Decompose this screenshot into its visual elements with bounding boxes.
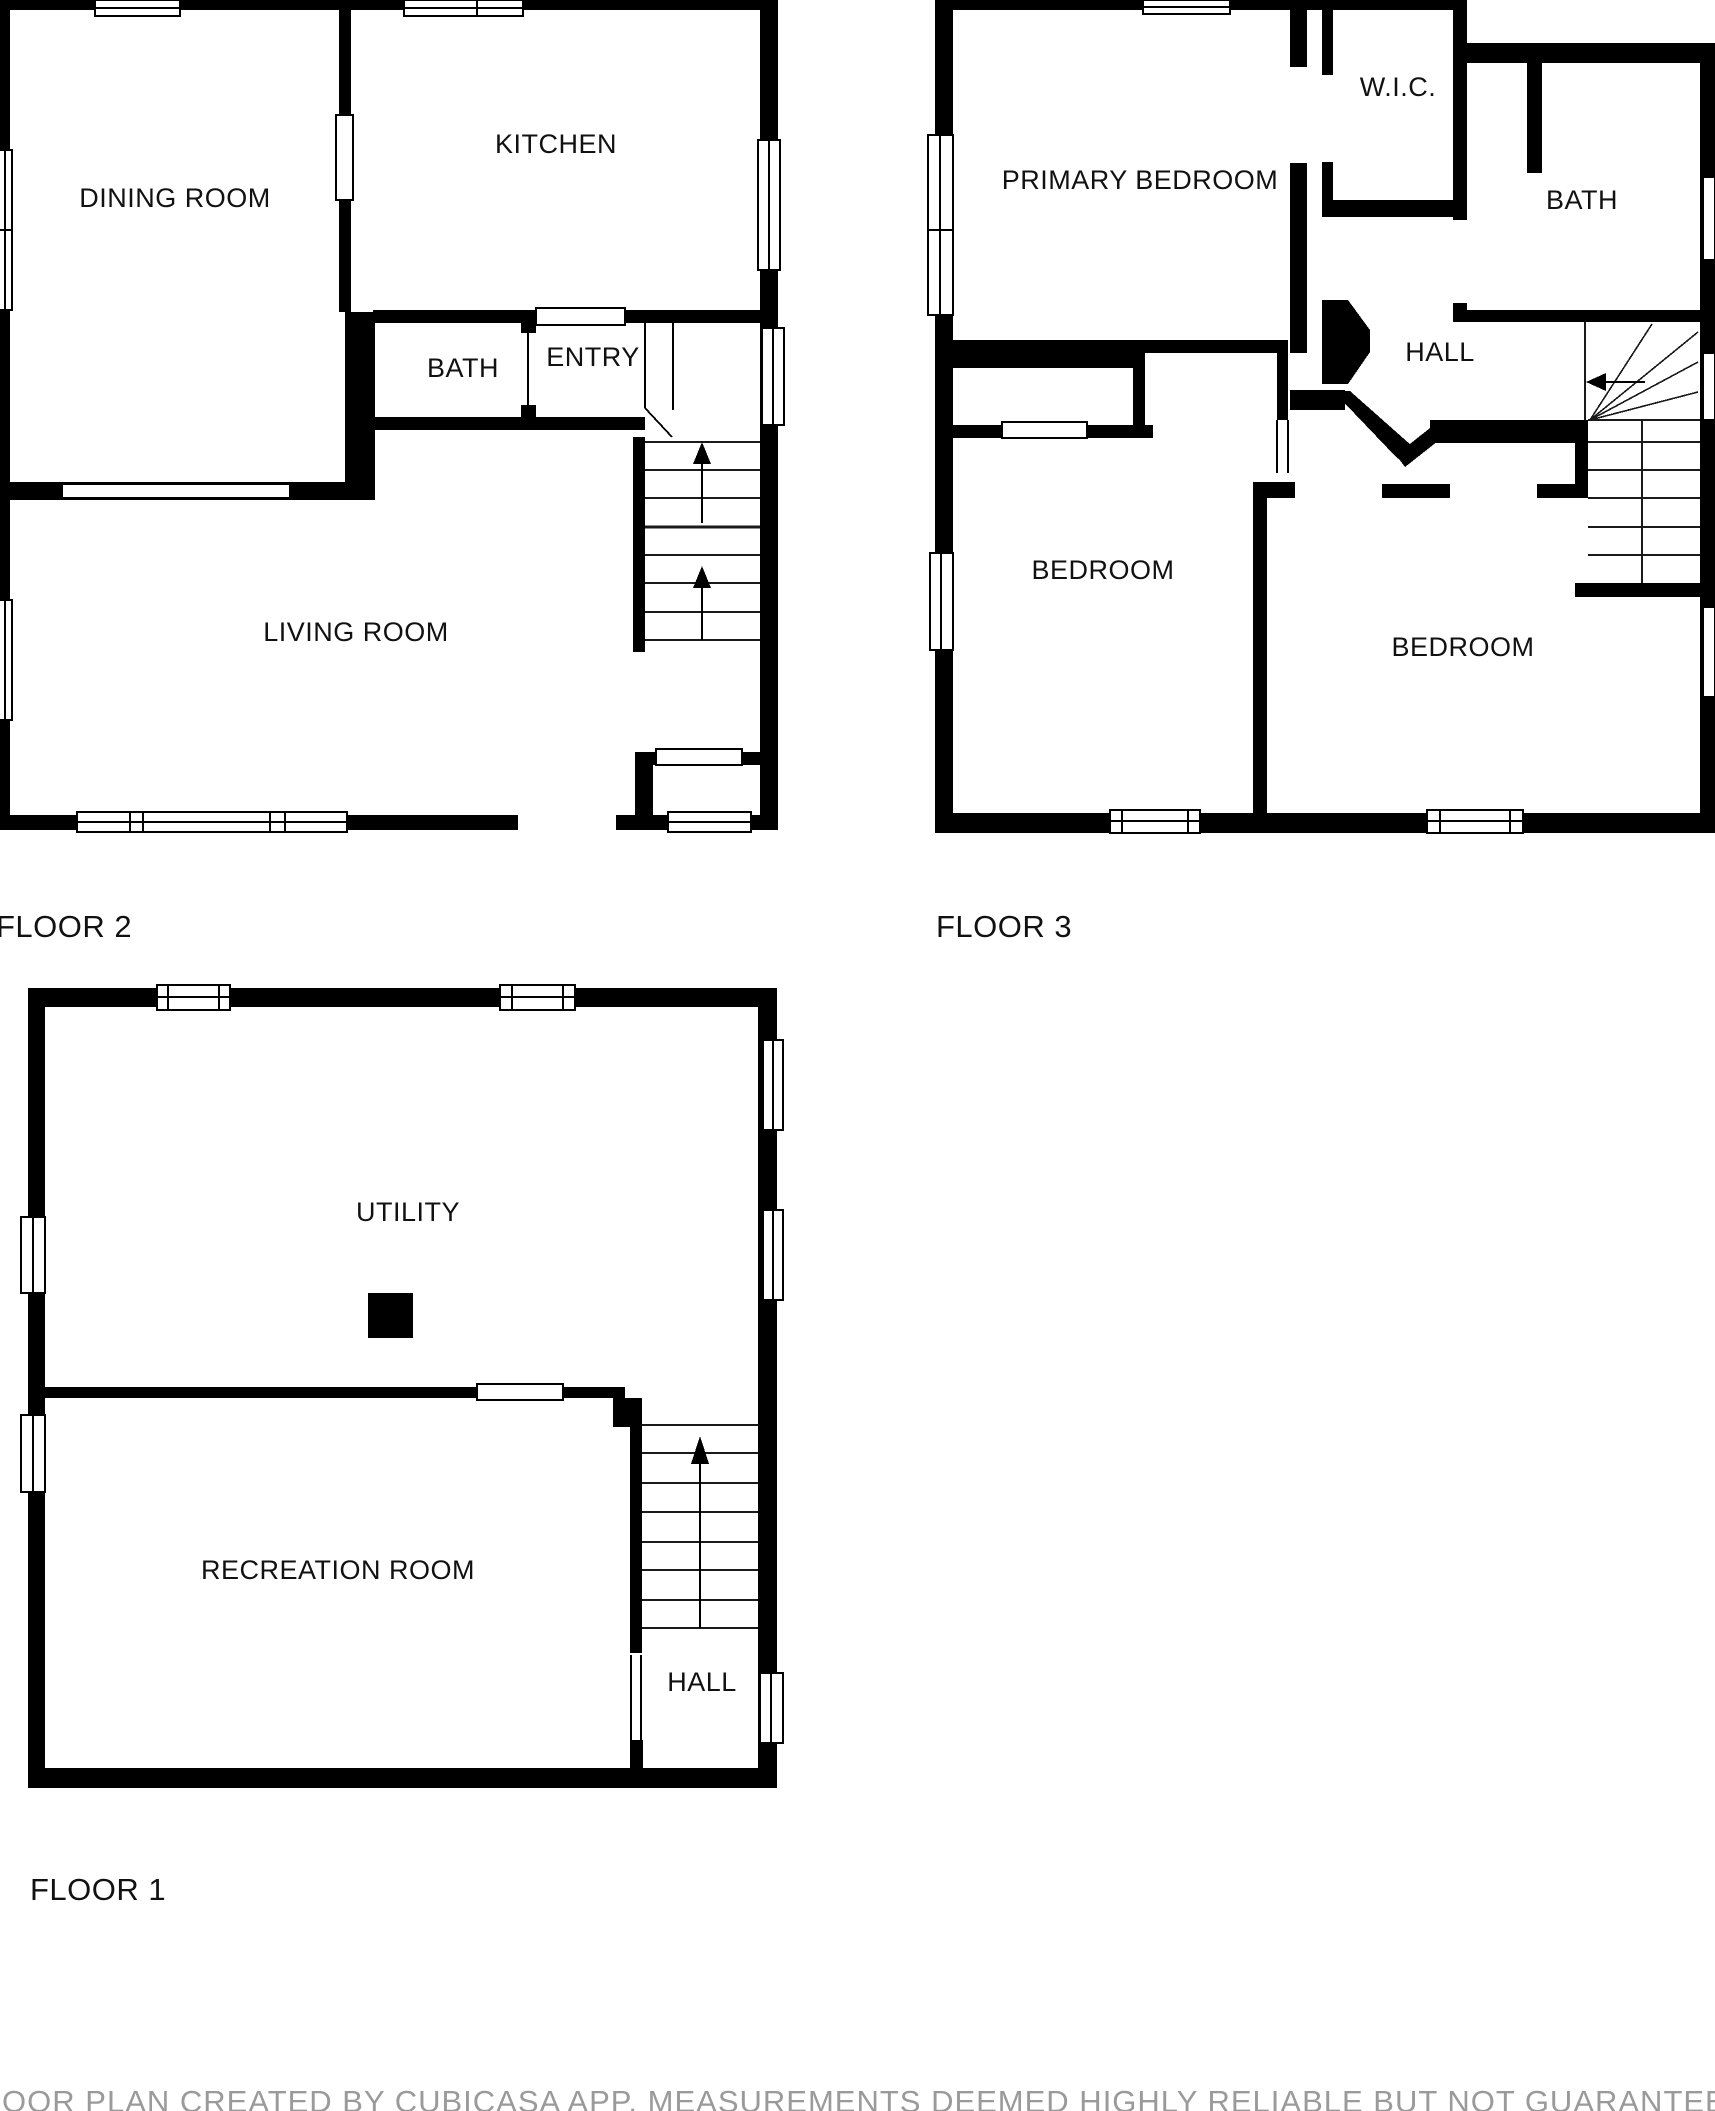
floor-2-walls [0, 0, 778, 830]
window [930, 553, 953, 650]
closet-opening [1002, 422, 1087, 438]
window [77, 812, 347, 832]
floorplan-canvas: DINING ROOM KITCHEN BATH ENTRY LIVING RO… [0, 0, 1715, 2111]
bedroom-door-boundary [1277, 420, 1288, 473]
floor-3-staircase [1585, 322, 1700, 583]
room-label-bedroom-1: BEDROOM [1031, 555, 1174, 585]
window [1110, 810, 1200, 833]
window [763, 1210, 783, 1300]
room-label-hall-f1: HALL [667, 1667, 737, 1697]
window [0, 600, 12, 720]
window [157, 985, 230, 1010]
stairs-up-arrow [693, 442, 711, 523]
room-label-living: LIVING ROOM [263, 617, 449, 647]
floor-1-plan: UTILITY RECREATION ROOM HALL FLOOR 1 [21, 985, 783, 1907]
kitchen-entry-opening [536, 308, 625, 325]
utility-rec-opening [477, 1384, 563, 1400]
window [1143, 0, 1230, 14]
room-label-utility: UTILITY [356, 1197, 460, 1227]
window [1427, 810, 1523, 833]
room-label-entry: ENTRY [546, 342, 640, 372]
dining-living-opening [62, 484, 290, 498]
room-label-bath-f2: BATH [427, 353, 499, 383]
room-label-primary-bedroom: PRIMARY BEDROOM [1002, 165, 1279, 195]
window [928, 135, 953, 315]
floor-1-label: FLOOR 1 [30, 1872, 166, 1907]
floorplan-page: DINING ROOM KITCHEN BATH ENTRY LIVING RO… [0, 0, 1715, 2111]
room-label-kitchen: KITCHEN [495, 129, 617, 159]
primary-bedroom-door-opening [1290, 67, 1307, 163]
stairs-up-arrow [693, 566, 711, 640]
window [95, 0, 180, 16]
window [21, 1217, 45, 1293]
window [763, 1040, 783, 1130]
window [758, 140, 780, 270]
room-label-bath-f3: BATH [1546, 185, 1618, 215]
stairs-down-arrow [1586, 373, 1645, 391]
disclaimer-text: FLOOR PLAN CREATED BY CUBICASA APP. MEAS… [0, 2084, 1715, 2111]
window [668, 812, 751, 832]
window [762, 328, 784, 425]
window [21, 1415, 45, 1492]
room-label-dining: DINING ROOM [79, 183, 271, 213]
window [404, 0, 523, 16]
window [760, 1673, 783, 1743]
floor-3-label: FLOOR 3 [936, 909, 1072, 944]
pass-through-window [336, 115, 353, 200]
window [1703, 607, 1715, 697]
floor-2-plan: DINING ROOM KITCHEN BATH ENTRY LIVING RO… [0, 0, 784, 944]
front-door-opening [518, 813, 616, 832]
window [1703, 177, 1715, 260]
floor-1-walls [28, 988, 777, 1788]
furnace-block [368, 1293, 413, 1338]
hall-door-boundary [631, 1655, 641, 1740]
window [0, 150, 12, 310]
porch-opening [656, 749, 742, 765]
room-label-bedroom-2: BEDROOM [1391, 632, 1534, 662]
window [500, 985, 575, 1010]
floor-2-staircase [645, 442, 760, 640]
room-label-recreation: RECREATION ROOM [201, 1555, 475, 1585]
bath-door-opening [1453, 220, 1467, 303]
room-label-wic: W.I.C. [1360, 72, 1437, 102]
floor-1-staircase [642, 1425, 758, 1628]
floor-3-plan: PRIMARY BEDROOM W.I.C. BATH HALL BEDROOM… [928, 0, 1715, 944]
room-label-hall-f3: HALL [1405, 337, 1475, 367]
floor-2-label: FLOOR 2 [0, 909, 132, 944]
wic-door-opening [1322, 75, 1333, 162]
window [1703, 353, 1715, 420]
